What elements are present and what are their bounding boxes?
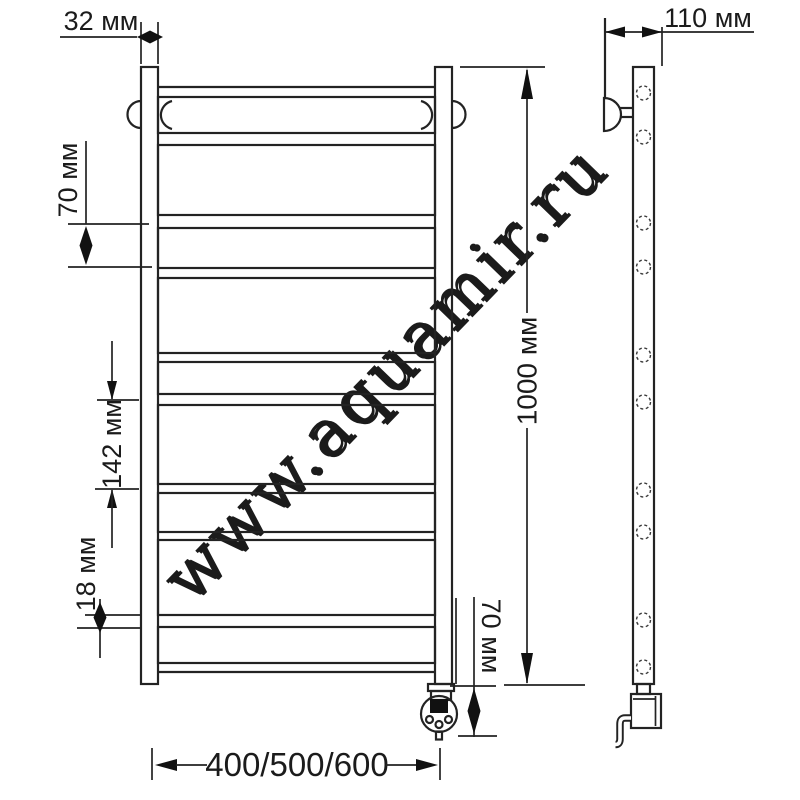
rung-hole-1 (637, 86, 651, 100)
side-profile-bar (633, 67, 654, 684)
heater-neck-side (637, 684, 650, 694)
heater-display (430, 699, 448, 713)
rung-hole-7 (637, 483, 651, 497)
arrow-110mm-left (605, 27, 625, 38)
rung-hole-8 (637, 525, 651, 539)
watermark: www.aquamir.ru www.aquamir.ru (146, 128, 625, 617)
side-view (604, 18, 661, 745)
arrow-width-left (155, 759, 177, 771)
rung-hole-5 (637, 348, 651, 362)
rung-2 (158, 145, 435, 215)
wall-bracket-side-icon (604, 98, 621, 131)
rung-hole-6 (637, 395, 651, 409)
arrow-142mm-down (107, 381, 117, 400)
dim-label-70mm-bottom: 70 мм (476, 599, 506, 674)
diamond-arrow-70mm-bottom (468, 688, 481, 734)
rung-hole-2 (637, 130, 651, 144)
watermark-text: www.aquamir.ru (146, 128, 622, 617)
arrow-110mm-right (642, 27, 662, 38)
rung-hole-9 (637, 613, 651, 627)
dimension-rung-pitch: 70 мм (53, 141, 152, 267)
dimension-heater-drop: 70 мм (450, 597, 506, 737)
rung-end-arc-left (161, 101, 172, 129)
dimension-wall-depth: 110 мм (605, 3, 754, 66)
heating-element-front (421, 684, 457, 740)
dimension-width-options: 400/500/600 (152, 746, 440, 783)
rung-3 (158, 228, 435, 268)
dim-label-width-options: 400/500/600 (205, 746, 389, 783)
rung-hole-3 (637, 216, 651, 230)
towel-rail-technical-drawing: www.aquamir.ru www.aquamir.ru (0, 0, 800, 800)
dim-label-18mm: 18 мм (71, 537, 101, 612)
drawing-canvas: www.aquamir.ru www.aquamir.ru (0, 0, 800, 800)
dim-label-32mm: 32 мм (64, 6, 139, 36)
heater-button-right (445, 716, 452, 723)
arrow-width-right (416, 759, 438, 771)
rung-hole-10 (637, 660, 651, 674)
arrow-1000mm-up (521, 68, 533, 99)
diamond-arrow-70mm-left (80, 226, 93, 265)
dim-label-70mm-left: 70 мм (53, 143, 83, 218)
rung-1 (158, 97, 435, 133)
heating-element-side (616, 684, 662, 745)
dim-label-142mm: 142 мм (97, 399, 127, 489)
wall-bracket-left-icon (128, 101, 142, 128)
dim-label-1000mm: 1000 мм (512, 317, 543, 426)
front-view (128, 67, 466, 740)
dim-label-110mm: 110 мм (664, 3, 752, 33)
heater-button-center (436, 721, 443, 728)
arrow-1000mm-down (521, 653, 533, 684)
rung-end-arc-right (421, 101, 432, 129)
rung-hole-markers (637, 86, 651, 674)
power-cable-outline (616, 718, 632, 745)
wall-bracket-right-icon (452, 101, 466, 128)
left-tube (141, 67, 158, 684)
heater-button-left (426, 716, 433, 723)
dimension-bottom-rung-gap: 18 мм (71, 537, 141, 658)
rung-hole-4 (637, 260, 651, 274)
rung-9 (158, 627, 435, 663)
dimension-section-spacing: 142 мм (95, 341, 139, 548)
dimension-tube-width: 32 мм (60, 6, 163, 64)
